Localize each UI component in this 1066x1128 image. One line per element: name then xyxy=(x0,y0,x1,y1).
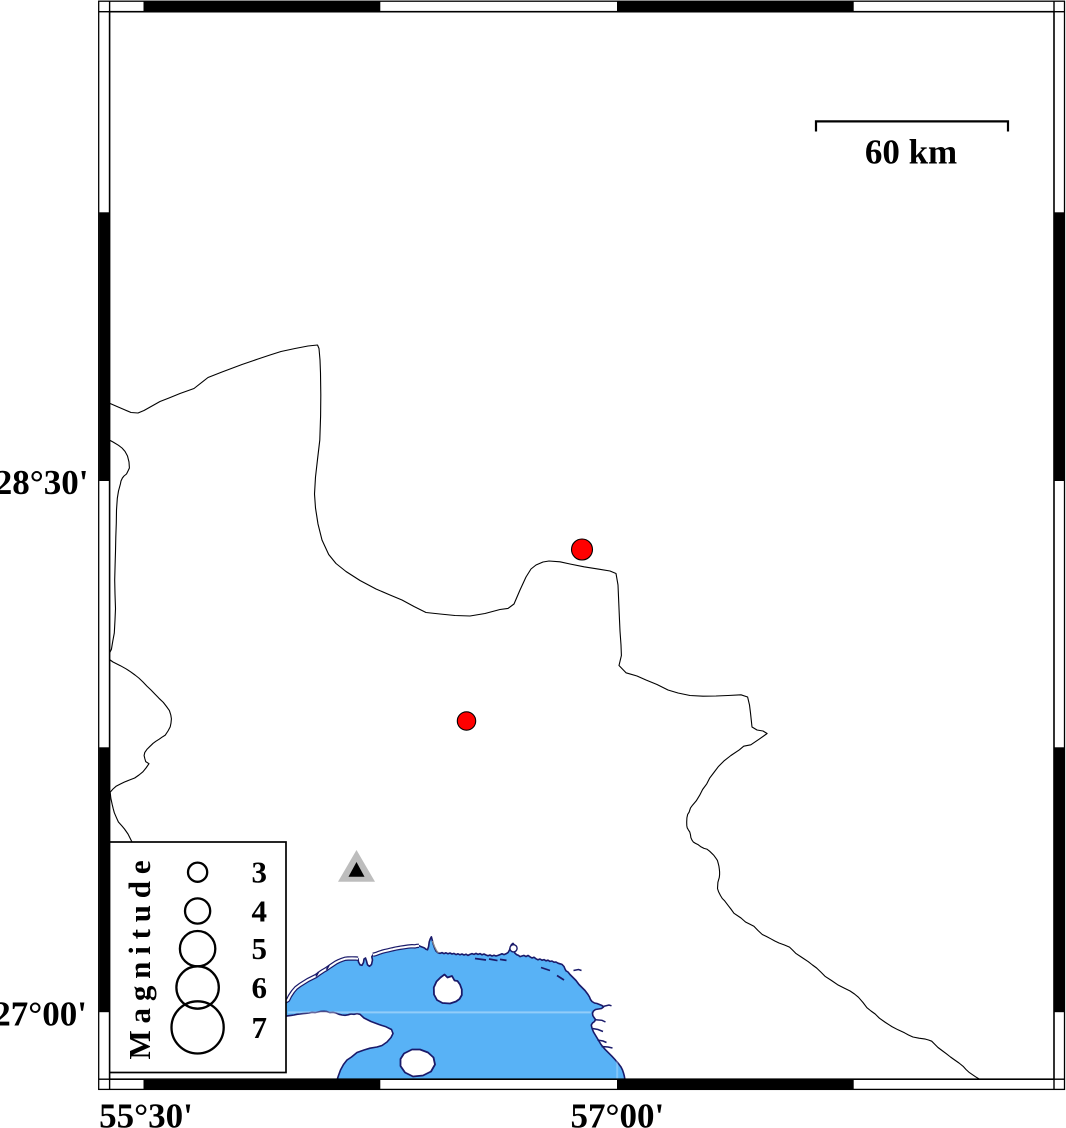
svg-text:Magnitude: Magnitude xyxy=(122,854,157,1060)
svg-text:57°00': 57°00' xyxy=(571,1097,665,1128)
svg-text:55°30': 55°30' xyxy=(99,1097,193,1128)
svg-text:4: 4 xyxy=(252,894,268,929)
svg-text:5: 5 xyxy=(252,931,268,966)
svg-text:27°00': 27°00' xyxy=(0,995,87,1034)
svg-text:6: 6 xyxy=(252,970,268,1005)
svg-text:28°30': 28°30' xyxy=(0,463,89,502)
svg-text:60 km: 60 km xyxy=(865,133,957,172)
svg-text:7: 7 xyxy=(252,1010,268,1045)
svg-text:3: 3 xyxy=(252,855,268,890)
